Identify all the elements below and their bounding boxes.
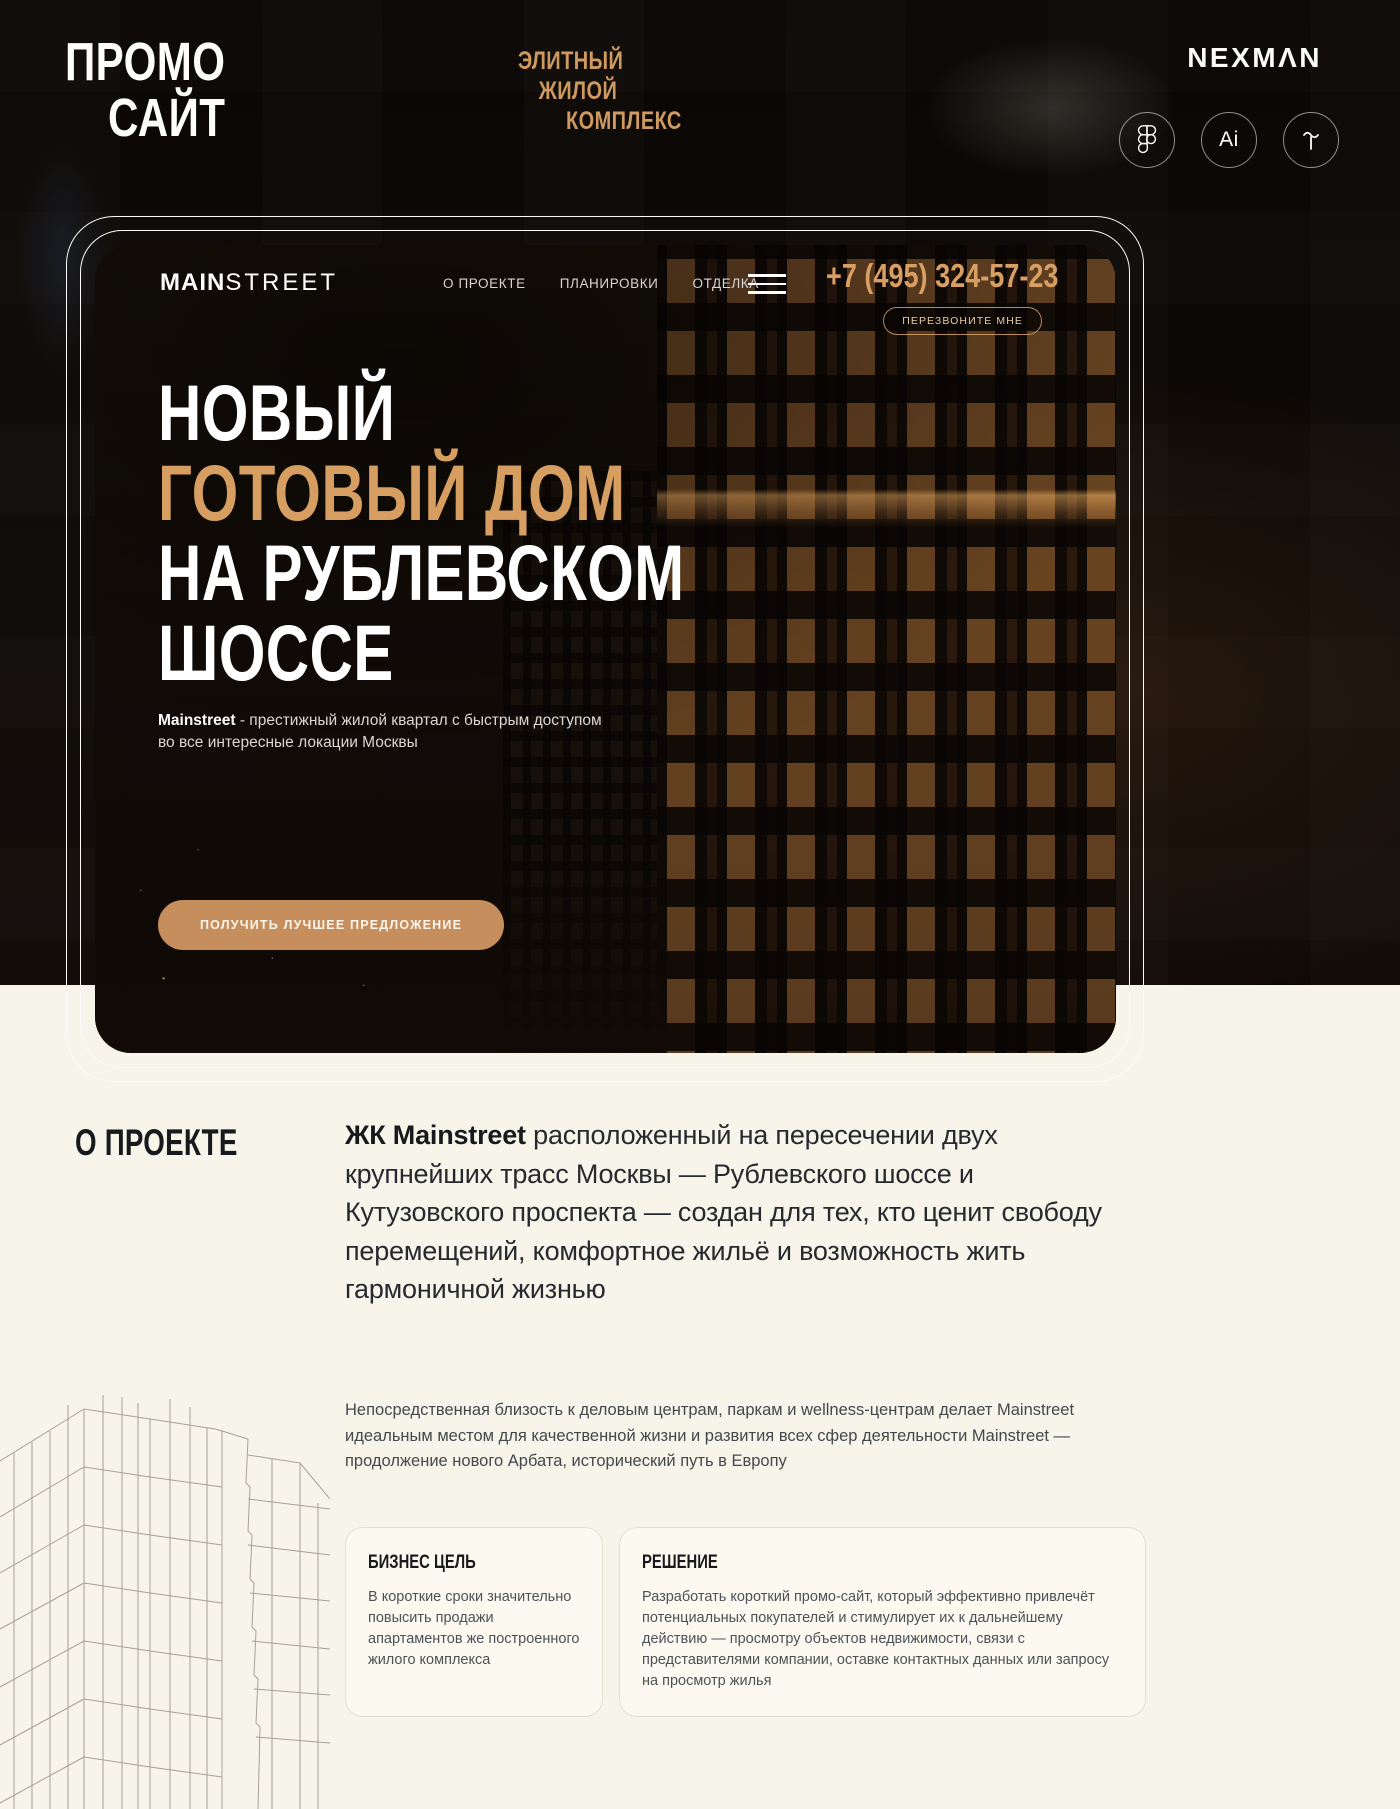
about-heading: О ПРОЕКТЕ [75, 1122, 238, 1164]
page-title: ПРОМО САЙТ [65, 34, 225, 146]
hero-heading-line4: ШОССЕ [158, 613, 685, 693]
business-goal-body: В короткие сроки значительно повысить пр… [368, 1587, 580, 1671]
best-offer-button[interactable]: ПОЛУЧИТЬ ЛУЧШЕЕ ПРЕДЛОЖЕНИЕ [158, 900, 504, 950]
callback-button[interactable]: ПЕРЕЗВОНИТЕ МНЕ [883, 307, 1042, 335]
hero-heading-line3: НА РУБЛЕВСКОМ [158, 533, 685, 613]
hamburger-menu-icon[interactable] [748, 274, 786, 294]
mainstreet-logo: MAINSTREET [160, 269, 338, 297]
hero-subtext: Mainstreet - престижный жилой квартал с … [158, 710, 618, 754]
promo-site-hero-card: MAINSTREET О ПРОЕКТЕ ПЛАНИРОВКИ ОТДЕЛКА … [95, 245, 1116, 1053]
solution-card: РЕШЕНИЕ Разработать короткий промо-сайт,… [619, 1527, 1146, 1717]
subtitle-line1: ЭЛИТНЫЙ [518, 46, 682, 76]
site-header: MAINSTREET О ПРОЕКТЕ ПЛАНИРОВКИ ОТДЕЛКА … [95, 245, 1116, 325]
subtitle-line2: ЖИЛОЙ [539, 76, 682, 106]
nav-item-about[interactable]: О ПРОЕКТЕ [443, 276, 526, 291]
tool-badges: Ai [1119, 112, 1339, 168]
nav-item-plans[interactable]: ПЛАНИРОВКИ [560, 276, 659, 291]
tilda-icon[interactable] [1283, 112, 1339, 168]
about-paragraph: Непосредственная близость к деловым цент… [345, 1398, 1140, 1475]
adobe-illustrator-icon[interactable]: Ai [1201, 112, 1257, 168]
hero-heading-line2: ГОТОВЫЙ ДОМ [158, 453, 685, 533]
page: ПРОМО САЙТ ЭЛИТНЫЙ ЖИЛОЙ КОМПЛЕКС NEXMΛN… [0, 0, 1400, 1809]
page-title-line2: САЙТ [65, 90, 225, 146]
subtitle-line3: КОМПЛЕКС [566, 106, 682, 136]
business-goal-title: БИЗНЕС ЦЕЛЬ [368, 1552, 533, 1574]
solution-body: Разработать короткий промо-сайт, который… [642, 1587, 1123, 1692]
hero-heading-line1: НОВЫЙ [158, 373, 685, 453]
page-title-line1: ПРОМО [65, 34, 225, 90]
solution-title: РЕШЕНИЕ [642, 1552, 1017, 1574]
business-goal-card: БИЗНЕС ЦЕЛЬ В короткие сроки значительно… [345, 1527, 603, 1717]
about-lead: ЖК Mainstreet расположенный на пересечен… [345, 1116, 1125, 1309]
site-nav: О ПРОЕКТЕ ПЛАНИРОВКИ ОТДЕЛКА [443, 276, 759, 291]
phone-link[interactable]: +7 (495) 324-57-23 [826, 257, 1058, 295]
building-wireframe-sketch [0, 1395, 330, 1809]
nexman-logo: NEXMΛN [1187, 42, 1322, 74]
page-subtitle: ЭЛИТНЫЙ ЖИЛОЙ КОМПЛЕКС [518, 46, 682, 136]
hero-heading: НОВЫЙ ГОТОВЫЙ ДОМ НА РУБЛЕВСКОМ ШОССЕ [158, 373, 851, 693]
figma-icon[interactable] [1119, 112, 1175, 168]
